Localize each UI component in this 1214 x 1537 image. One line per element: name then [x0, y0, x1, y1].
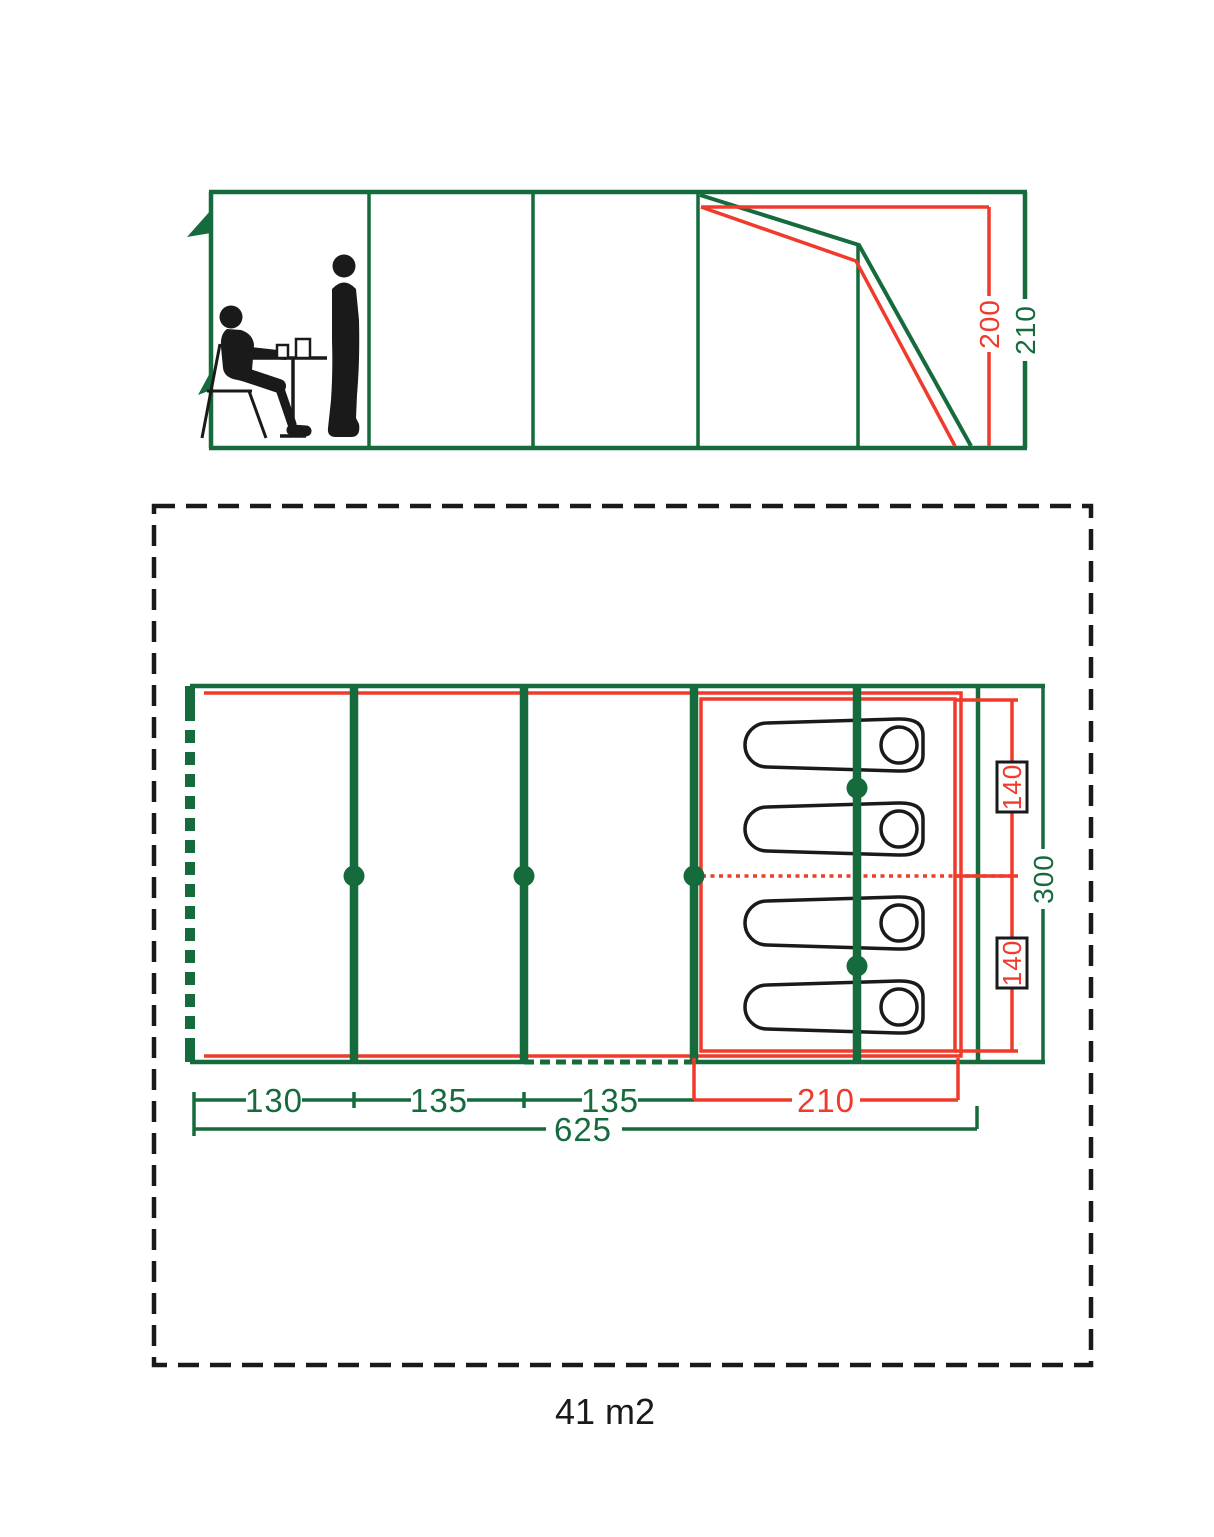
- pole-joint-dot: [514, 866, 535, 887]
- seated-person-shin: [279, 386, 292, 424]
- total-length-dimension-row: 625: [194, 1106, 977, 1148]
- standing-person-icon: [328, 255, 359, 438]
- cup-icon: [277, 345, 288, 358]
- seated-person-thigh: [243, 374, 279, 386]
- pillow-circle: [881, 989, 917, 1025]
- seated-person-head: [220, 306, 243, 329]
- area-caption: 41 m2: [555, 1391, 655, 1432]
- pillow-circle: [881, 811, 917, 847]
- inner-tent-slope-line: [701, 207, 955, 446]
- pillow-circle: [881, 905, 917, 941]
- sleeping-bag-icon: [745, 897, 923, 949]
- height-dimension-200: 200: [974, 207, 1005, 446]
- bed-width-label: 140: [997, 940, 1027, 986]
- cup-icon: [296, 339, 310, 358]
- pitch-area-outline: [154, 506, 1091, 1365]
- standing-person-head: [333, 255, 356, 278]
- bed-width-dimension: 140 140: [955, 700, 1027, 1051]
- total-length-label: 625: [554, 1111, 612, 1148]
- bedroom-length-label: 210: [797, 1082, 855, 1119]
- segment-length-label: 135: [410, 1082, 468, 1119]
- inner-height-label: 200: [974, 299, 1005, 349]
- tent-floor-plan: 140 140 300 130 135 135 210: [154, 506, 1091, 1365]
- width-dimension-300: 300: [1028, 686, 1059, 1062]
- standing-person-body: [328, 283, 359, 438]
- chair-front-leg: [249, 391, 266, 438]
- pole-joint-dot: [847, 778, 868, 799]
- height-dimension-210: 210: [1010, 305, 1041, 355]
- sleeping-bag-icon: [745, 803, 923, 855]
- tent-dimension-diagram: 200 210: [0, 0, 1214, 1537]
- pillow-circle: [881, 727, 917, 763]
- sleeping-bag-icon: [745, 719, 923, 771]
- pole-joint-dot: [344, 866, 365, 887]
- width-label: 300: [1028, 854, 1059, 904]
- tent-side-elevation: 200 210: [187, 192, 1041, 448]
- bed-width-label: 140: [997, 764, 1027, 810]
- pole-joint-dot: [684, 866, 705, 887]
- diagram-svg: 200 210: [0, 0, 1214, 1537]
- sleeping-bag-icon: [745, 981, 923, 1033]
- outer-tent-slope-line: [700, 195, 971, 446]
- outer-height-label: 210: [1010, 305, 1041, 355]
- guy-line-flag-icon: [187, 210, 211, 237]
- pole-joint-dot: [847, 956, 868, 977]
- segment-length-label: 130: [245, 1082, 303, 1119]
